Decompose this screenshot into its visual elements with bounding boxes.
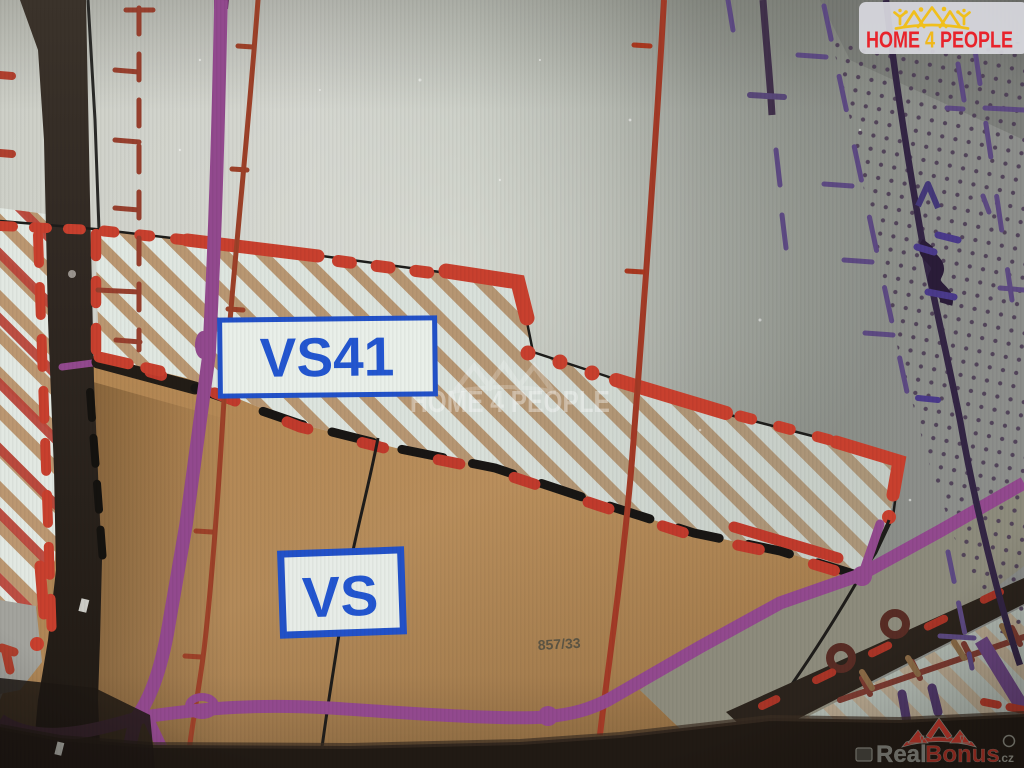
svg-text:HOME 4 PEOPLE: HOME 4 PEOPLE <box>866 27 1013 53</box>
svg-text:.cz: .cz <box>998 751 1014 765</box>
svg-text:Bonus: Bonus <box>925 741 1000 768</box>
svg-text:Real: Real <box>876 741 927 768</box>
